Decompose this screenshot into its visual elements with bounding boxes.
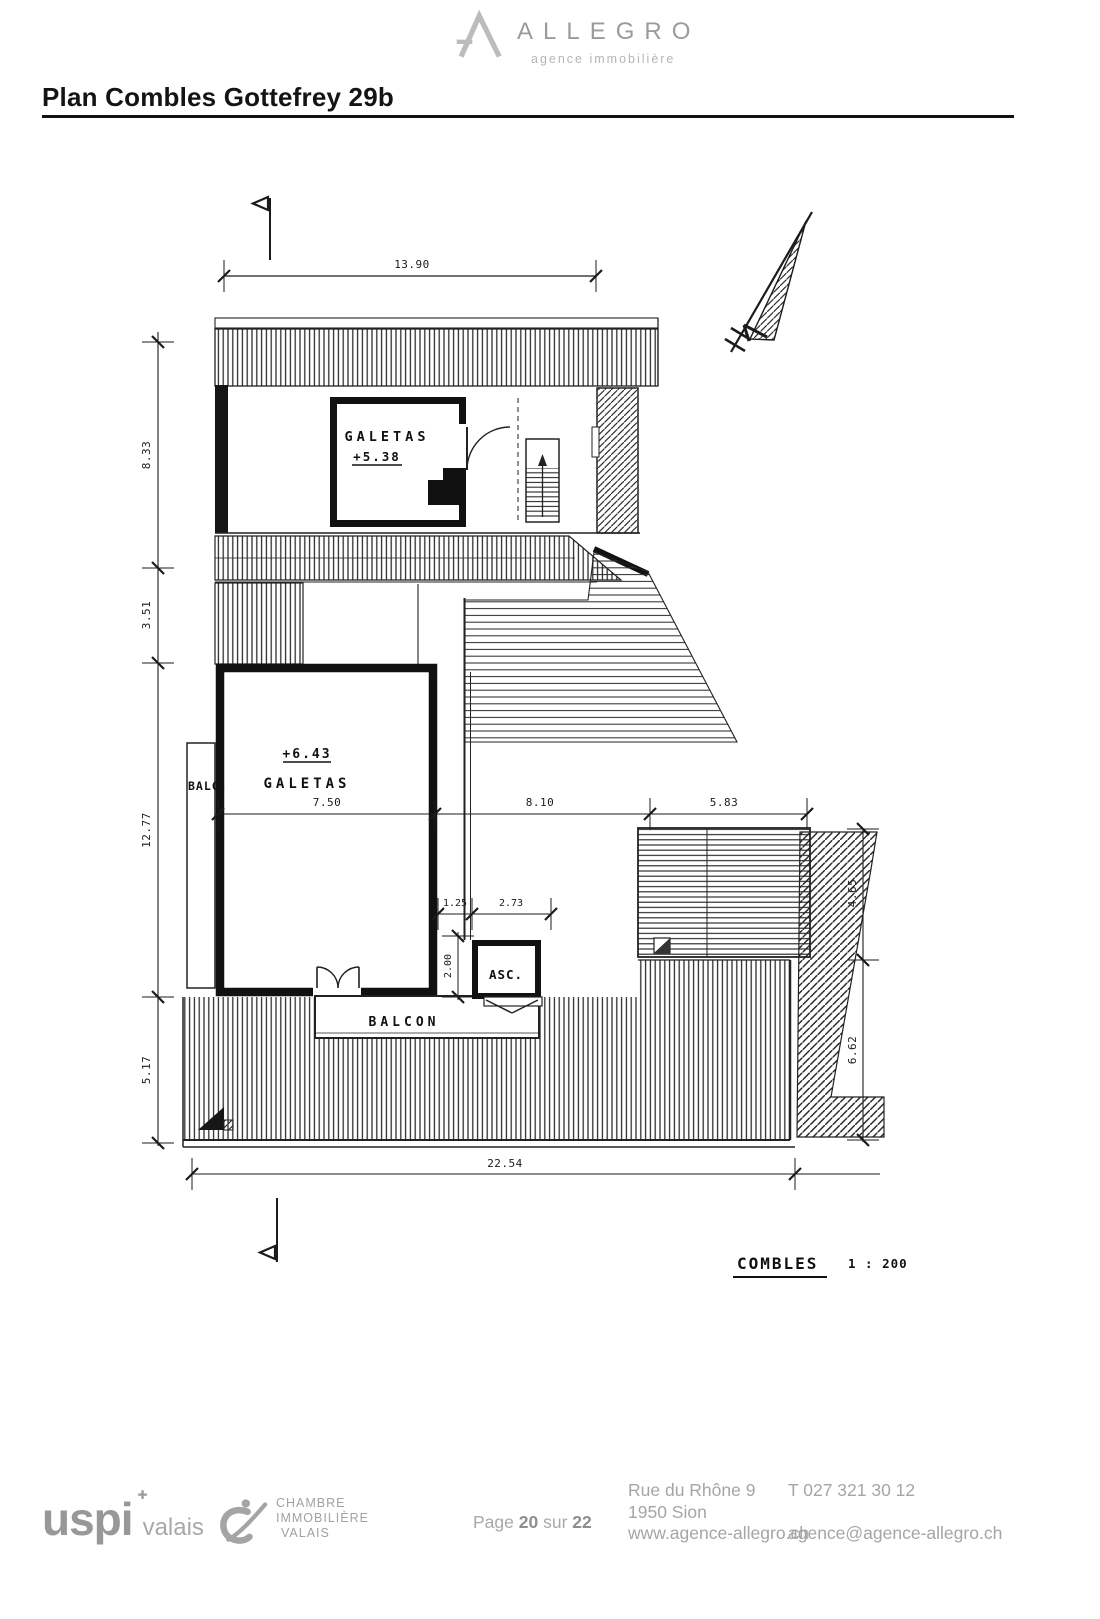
upper-roof-band (215, 318, 658, 386)
svg-text:GALETAS: GALETAS (263, 776, 350, 792)
chambre-immobiliere-logo: CHAMBRE IMMOBILIÈRE VALAIS (218, 1496, 369, 1548)
plan-caption: COMBLES 1 : 200 (733, 1254, 908, 1277)
svg-text:8.33: 8.33 (140, 441, 153, 470)
dimension-top: 13.90 (218, 258, 602, 292)
address-line: Rue du Rhône 9 (628, 1480, 809, 1502)
uspi-cross-icon: ✚ (138, 1488, 147, 1502)
svg-text:2.00: 2.00 (443, 954, 454, 978)
svg-text:6.62: 6.62 (846, 1036, 859, 1065)
civ-text: CHAMBRE IMMOBILIÈRE VALAIS (276, 1496, 369, 1548)
section-marker-bottom (260, 1198, 277, 1262)
section-marker-top (253, 197, 270, 260)
brand-tagline: agence immobilière (531, 52, 700, 66)
room-galetas-upper: GALETAS +5.38 (334, 401, 511, 524)
flat-roof-section (638, 828, 810, 957)
agency-phone: T 027 321 30 12 (788, 1480, 1002, 1502)
svg-text:BALCON: BALCON (369, 1015, 440, 1030)
svg-text:7.50: 7.50 (313, 796, 342, 809)
uspi-wordmark: uspi✚ (42, 1492, 133, 1546)
svg-text:ASC.: ASC. (489, 967, 523, 982)
north-arrow-icon (725, 212, 812, 352)
page-footer: uspi✚ valais CHAMBRE IMMOBILIÈRE VALAIS … (0, 1470, 1100, 1590)
agency-website: www.agence-allegro.ch (628, 1523, 809, 1545)
page-title: Plan Combles Gottefrey 29b (42, 82, 394, 113)
svg-text:+5.38: +5.38 (353, 449, 401, 464)
elevator-asc: ASC. (475, 943, 542, 1013)
svg-text:12.77: 12.77 (140, 812, 153, 848)
svg-text:8.10: 8.10 (526, 796, 555, 809)
svg-text:22.54: 22.54 (487, 1157, 523, 1170)
svg-text:3.51: 3.51 (140, 601, 153, 630)
dimension-bottom: 22.54 (186, 1157, 880, 1190)
svg-text:5.17: 5.17 (140, 1056, 153, 1085)
uspi-valais-logo: uspi✚ valais (42, 1492, 204, 1546)
title-rule (42, 115, 1014, 118)
svg-text:13.90: 13.90 (394, 258, 430, 271)
agency-address: Rue du Rhône 9 1950 Sion www.agence-alle… (628, 1480, 809, 1545)
svg-text:+6.43: +6.43 (282, 747, 331, 762)
svg-text:COMBLES: COMBLES (737, 1254, 818, 1273)
agency-contact: T 027 321 30 12 agence@agence-allegro.ch (788, 1480, 1002, 1544)
civ-monogram-icon (218, 1496, 268, 1548)
room-galetas-lower: +6.43 GALETAS (220, 668, 433, 998)
dimension-left-chain: 8.33 3.51 12.77 5.17 (140, 332, 174, 1149)
address-line: 1950 Sion (628, 1502, 809, 1524)
floor-plan: 13.90 8.33 3.51 12.77 5.17 (0, 150, 1100, 1320)
svg-text:GALETAS: GALETAS (345, 429, 430, 445)
page-number: Page 20 sur 22 (473, 1512, 592, 1533)
svg-text:2.73: 2.73 (499, 898, 523, 909)
svg-text:1.25: 1.25 (443, 898, 467, 909)
agency-email: agence@agence-allegro.ch (788, 1523, 1002, 1545)
uspi-region: valais (143, 1514, 204, 1542)
allegro-mark-icon (455, 6, 507, 62)
svg-text:1 : 200: 1 : 200 (848, 1256, 908, 1271)
svg-text:5.83: 5.83 (710, 796, 739, 809)
brand-name: ALLEGRO (517, 18, 700, 46)
staircase (518, 398, 559, 524)
svg-text:4.65: 4.65 (846, 879, 859, 908)
svg-text:BALC.: BALC. (188, 779, 228, 793)
document-page: ALLEGRO agence immobilière Plan Combles … (0, 0, 1100, 1619)
allegro-logo: ALLEGRO agence immobilière (455, 6, 700, 66)
